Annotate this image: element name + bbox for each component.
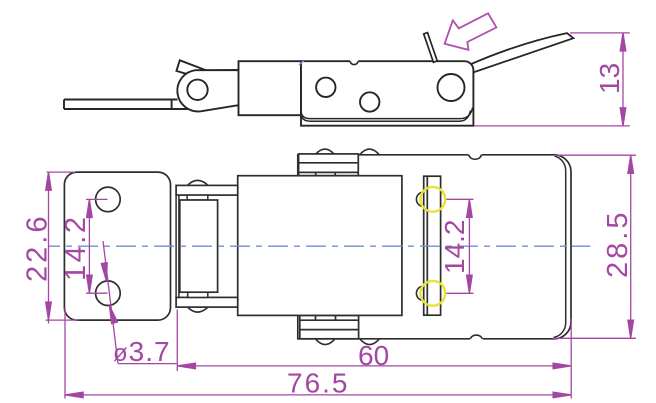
svg-text:14.2: 14.2 [439,220,470,275]
svg-text:60: 60 [358,340,389,371]
svg-text:13: 13 [594,63,625,94]
svg-text:ø3.7: ø3.7 [113,336,171,367]
svg-text:14.2: 14.2 [60,215,92,281]
svg-text:28.5: 28.5 [602,210,634,278]
svg-text:22.6: 22.6 [22,214,54,282]
svg-text:76.5: 76.5 [287,368,350,399]
